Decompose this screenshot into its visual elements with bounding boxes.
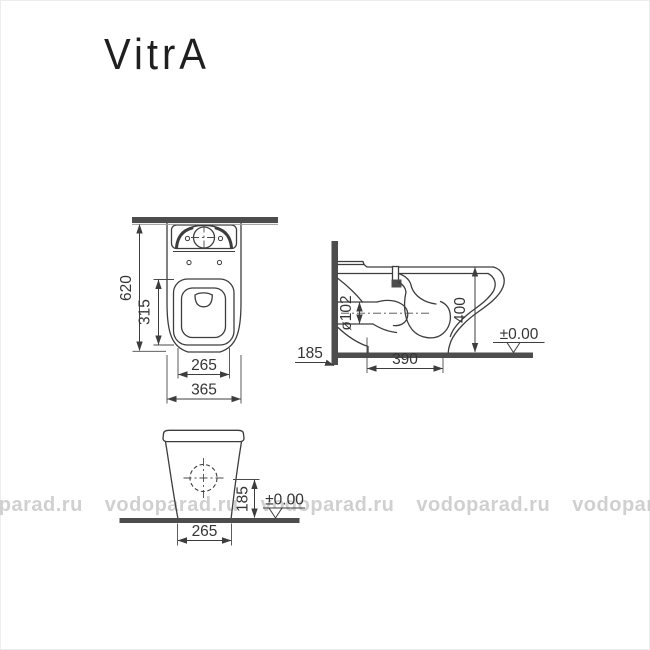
dim-400: 400: [452, 297, 469, 323]
front-view: 185 ±0.00 265: [120, 430, 306, 545]
dim-185-front: 185: [235, 486, 252, 512]
drawing-sheet: VitrA vodoparad.ru vodoparad.ru vodopara…: [0, 0, 650, 650]
side-view: ø102 400 390 185 ±0.00: [295, 241, 545, 373]
datum-label-front: ±0.00: [265, 492, 304, 509]
datum-label-side: ±0.00: [500, 326, 539, 343]
datum-symbol-side: [507, 343, 520, 353]
dim-315: 315: [137, 299, 154, 325]
flush-valve: [393, 267, 399, 282]
technical-drawing: 620 315 265 365: [1, 1, 650, 650]
lid-dot-left: [185, 236, 189, 240]
bowl-interior: [405, 292, 451, 338]
dim-365: 365: [191, 382, 217, 399]
dim-outlet-diameter: ø102: [338, 295, 355, 330]
plan-view: 620 315 265 365: [118, 217, 278, 404]
datum-symbol-front: [269, 508, 282, 518]
lid-dot-right: [218, 236, 222, 240]
wall-section-plan: [132, 217, 278, 223]
water-inlet: [195, 293, 212, 307]
pedestal-left-edge: [166, 442, 178, 518]
dim-265-front: 265: [192, 523, 218, 540]
dim-185-side: 185: [297, 345, 323, 362]
dim-265-plan: 265: [191, 357, 217, 374]
dim-620: 620: [118, 275, 135, 301]
dim-390: 390: [392, 351, 418, 368]
